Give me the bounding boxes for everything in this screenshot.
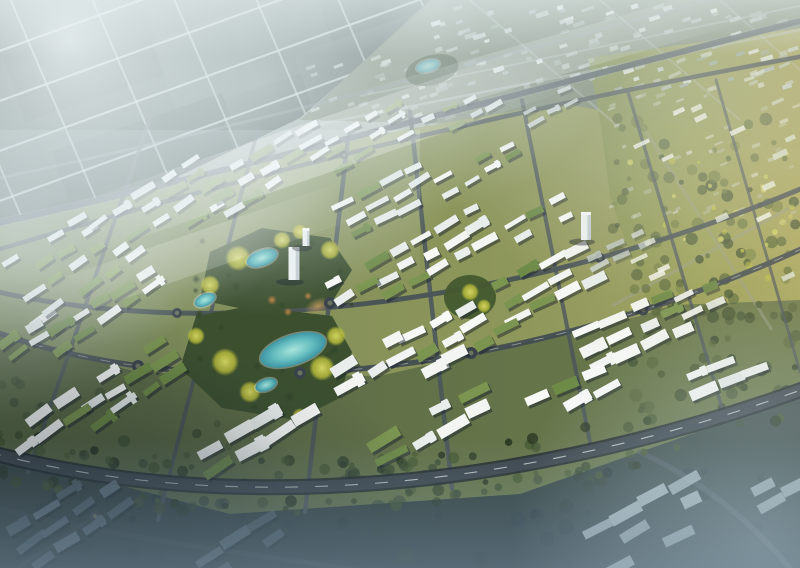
masterplan-scene <box>0 0 800 568</box>
fog-overlay <box>0 0 800 568</box>
aerial-city-masterplan-rendering <box>0 0 800 568</box>
haze-band <box>0 438 800 568</box>
